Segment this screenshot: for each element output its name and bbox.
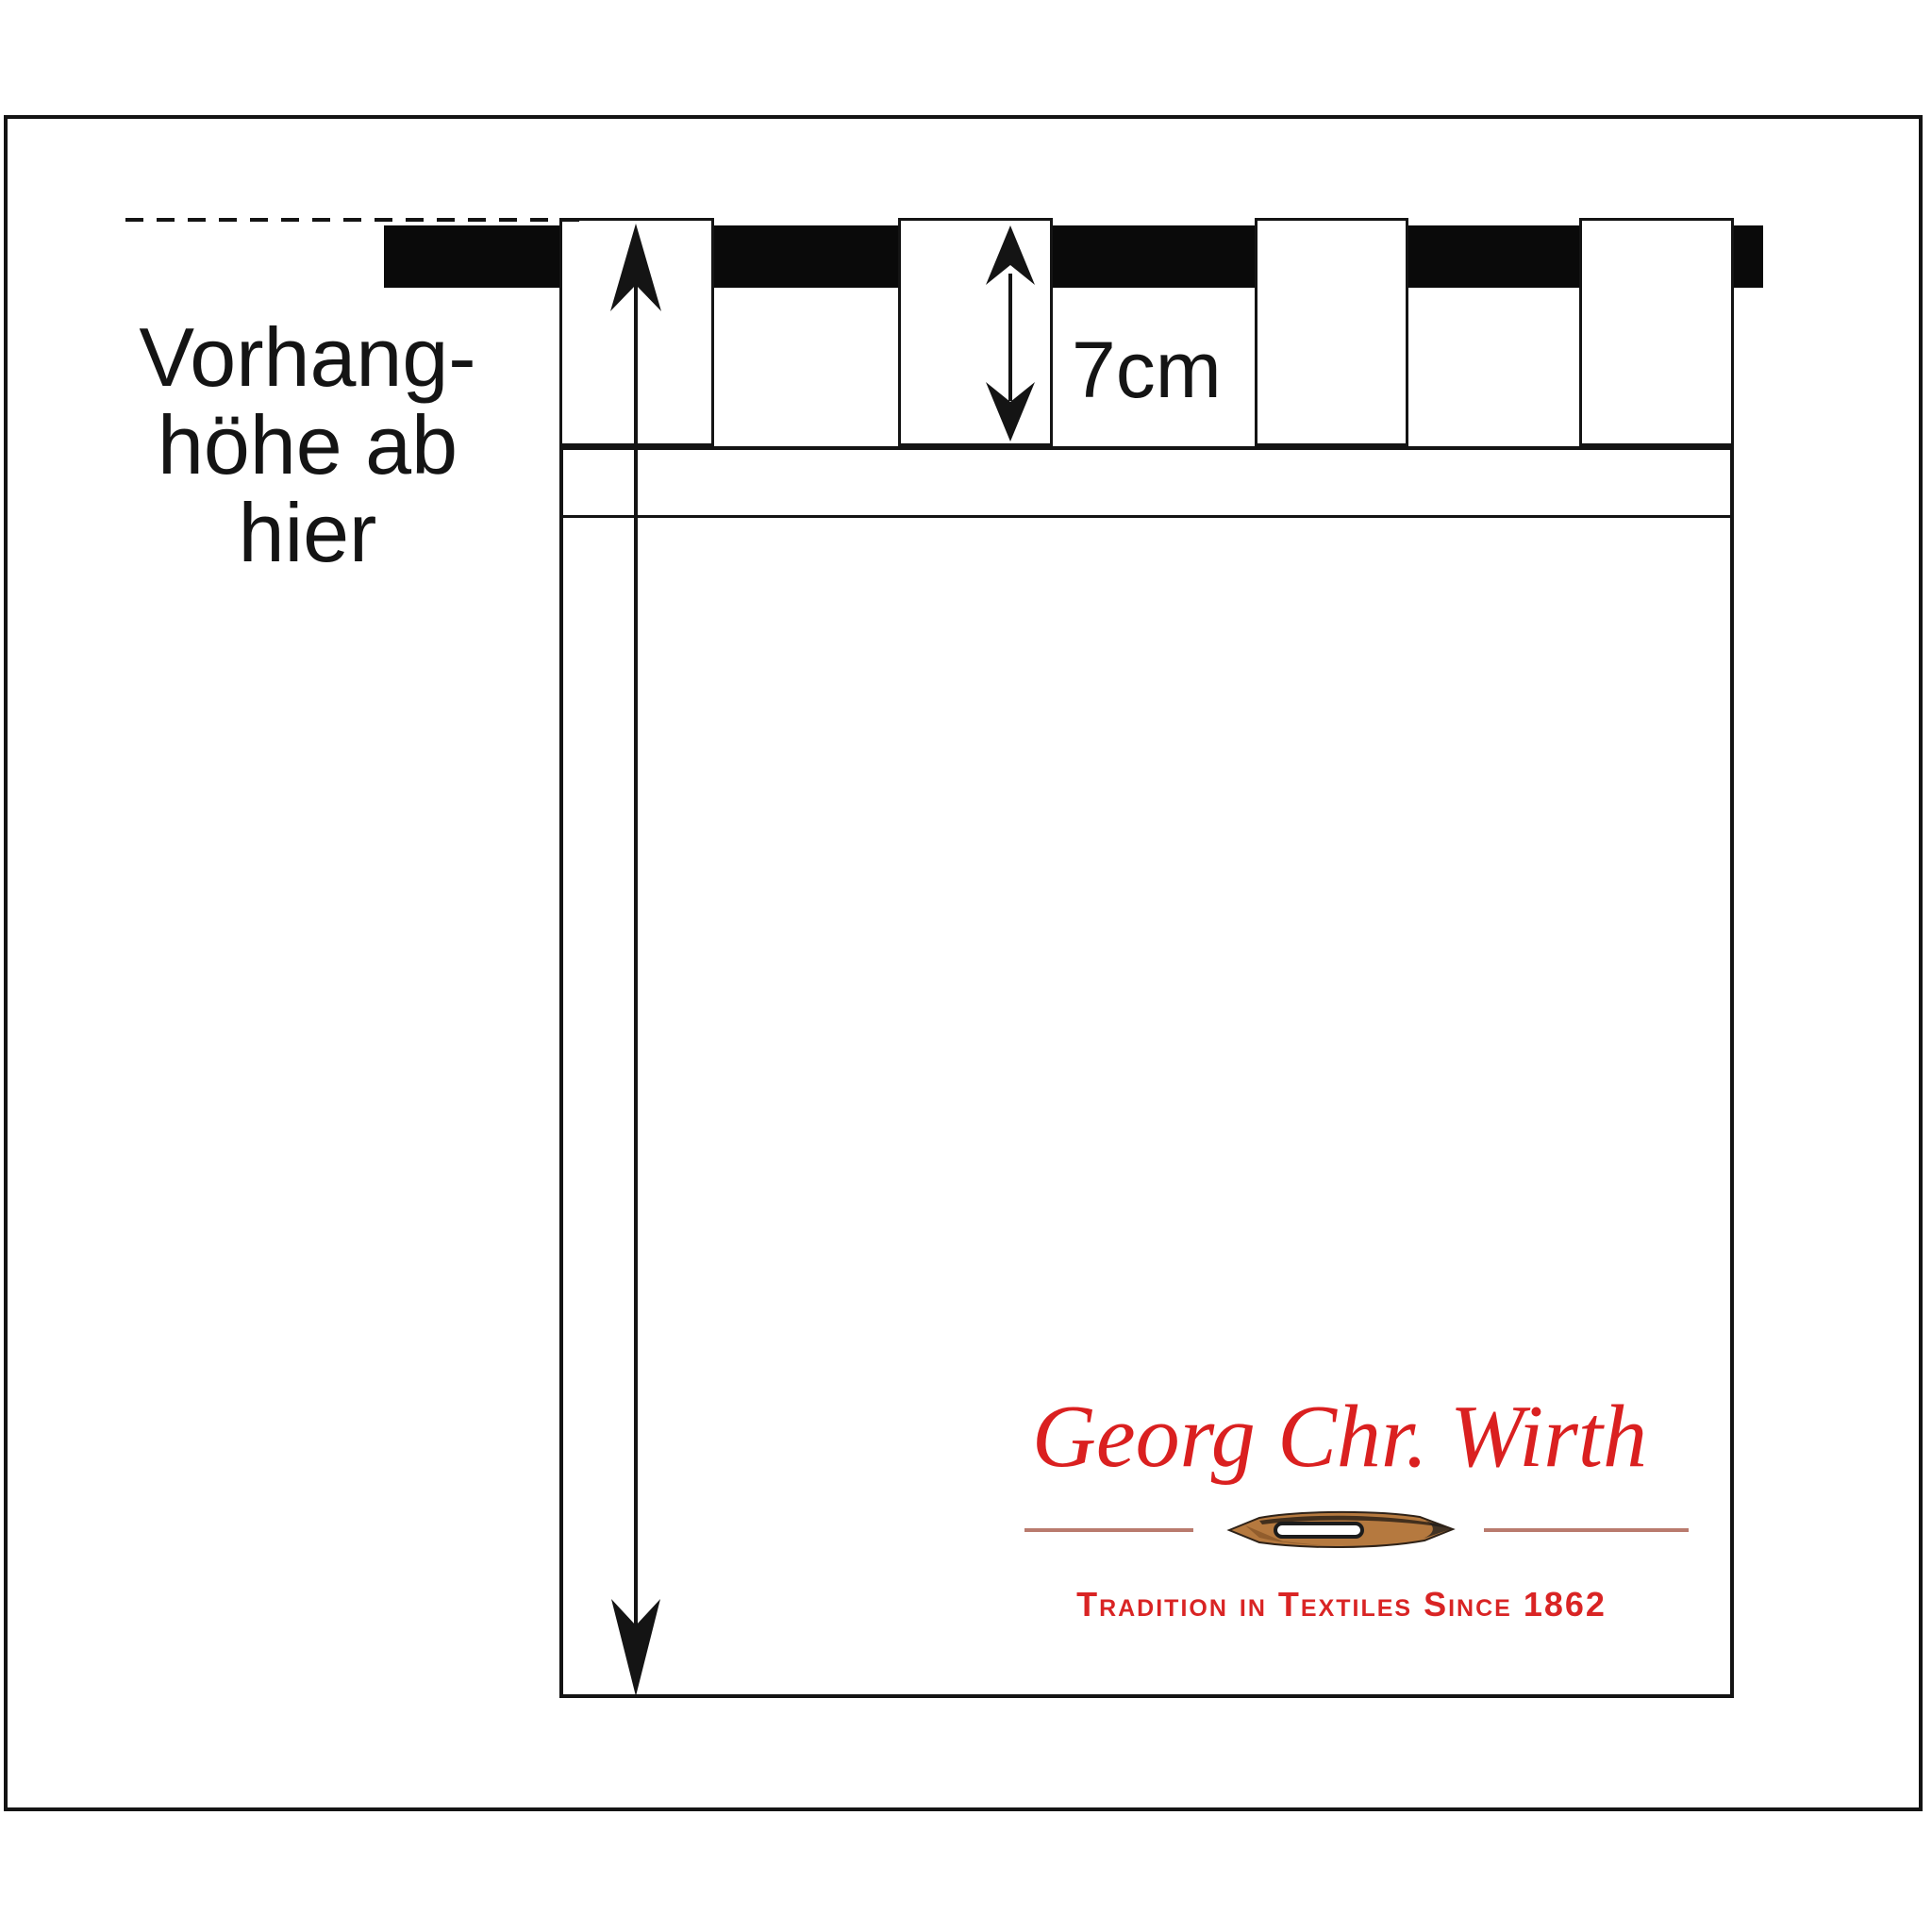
curtain-height-note-line-2: höhe ab bbox=[43, 401, 572, 489]
logo-divider-left bbox=[1024, 1528, 1193, 1532]
curtain-tab-2 bbox=[898, 218, 1053, 446]
curtain-tab-3 bbox=[1255, 218, 1408, 446]
curtain-panel bbox=[559, 446, 1734, 1698]
curtain-tab-1 bbox=[559, 218, 714, 446]
curtain-tab-4 bbox=[1579, 218, 1734, 446]
tab-height-label: 7cm bbox=[1072, 330, 1222, 409]
curtain-height-note-line-3: hier bbox=[43, 489, 572, 576]
brand-tagline: Tradition in Textiles Since 1862 bbox=[1076, 1588, 1607, 1622]
curtain-height-note: Vorhang- höhe ab hier bbox=[43, 313, 572, 576]
sewing-shuttle-icon bbox=[1226, 1509, 1456, 1550]
curtain-header-band bbox=[563, 450, 1730, 518]
brand-name: Georg Chr. Wirth bbox=[1032, 1392, 1647, 1481]
curtain-top-reference-dashed-line bbox=[125, 218, 579, 222]
curtain-height-note-line-1: Vorhang- bbox=[43, 313, 572, 401]
logo-divider-right bbox=[1484, 1528, 1689, 1532]
